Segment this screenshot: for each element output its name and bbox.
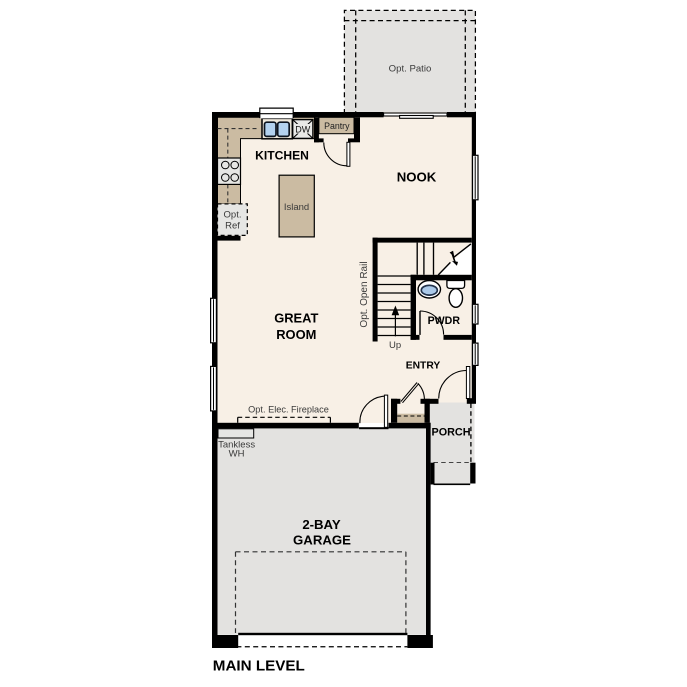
- svg-text:NOOK: NOOK: [397, 170, 437, 185]
- svg-text:WH: WH: [229, 449, 245, 460]
- svg-text:Opt.: Opt.: [224, 210, 242, 221]
- svg-text:GARAGE: GARAGE: [293, 532, 351, 547]
- svg-text:Island: Island: [284, 202, 309, 213]
- svg-text:Opt. Elec. Fireplace: Opt. Elec. Fireplace: [248, 404, 329, 414]
- svg-text:PWDR: PWDR: [428, 315, 461, 327]
- svg-text:Opt. Open Rail: Opt. Open Rail: [359, 261, 370, 327]
- svg-text:ENTRY: ENTRY: [406, 361, 441, 372]
- svg-text:Pantry: Pantry: [324, 121, 350, 131]
- svg-text:Up: Up: [389, 340, 401, 351]
- svg-text:PORCH: PORCH: [432, 427, 471, 439]
- svg-text:KITCHEN: KITCHEN: [255, 149, 309, 163]
- svg-text:GREAT: GREAT: [274, 311, 318, 326]
- svg-text:MAIN LEVEL: MAIN LEVEL: [213, 657, 305, 674]
- svg-text:2-BAY: 2-BAY: [302, 517, 341, 532]
- svg-text:Opt. Patio: Opt. Patio: [389, 63, 432, 74]
- svg-text:DW: DW: [295, 124, 310, 134]
- svg-text:ROOM: ROOM: [276, 327, 316, 342]
- svg-text:Ref: Ref: [225, 221, 240, 232]
